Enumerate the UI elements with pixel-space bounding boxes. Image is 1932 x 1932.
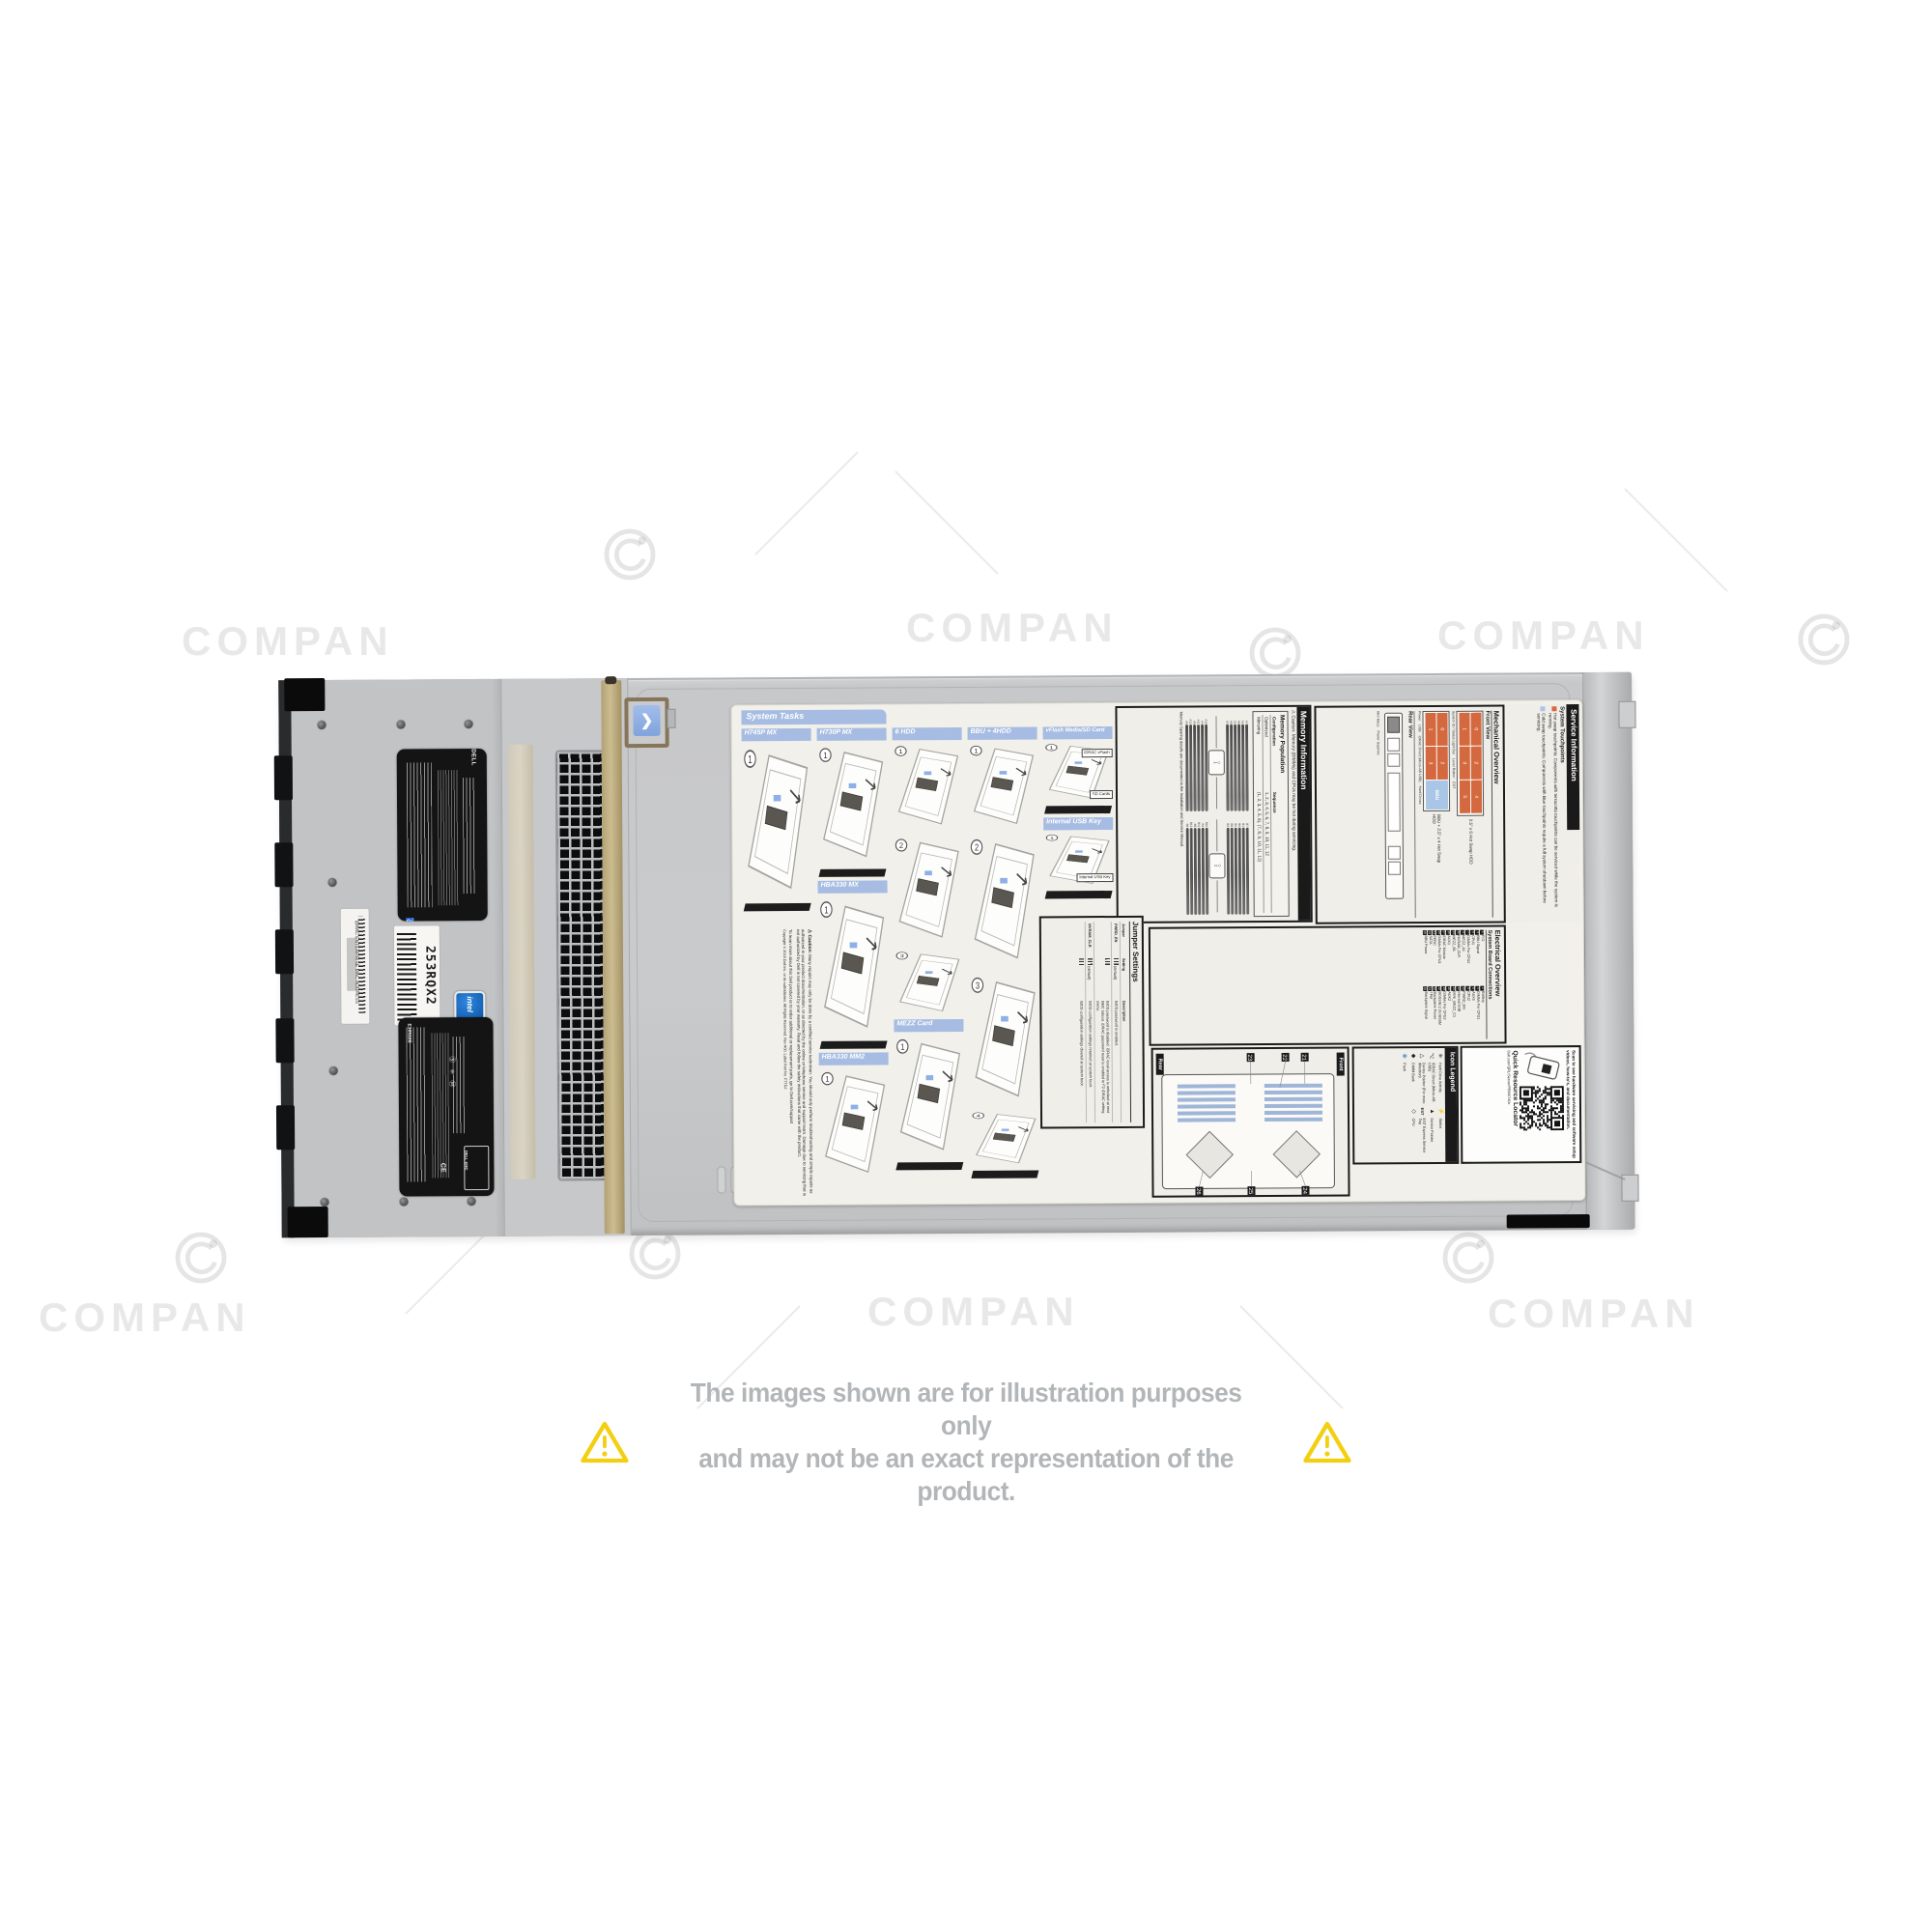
bbu-block: BBU (1426, 781, 1448, 810)
svg-text:21: 21 (1300, 1054, 1306, 1061)
ul-number: E105106 (406, 1023, 412, 1042)
task-diagram: 3 (894, 949, 963, 1016)
drive-bay: 0 (1470, 713, 1481, 746)
dell-emc-text: DELL EMC (464, 1151, 469, 1170)
connection-item: 2Battery (1480, 986, 1484, 1039)
connection-item: 13MEZZ_B1 (1451, 930, 1455, 983)
column-header: HBA330 MX (818, 880, 888, 893)
column-endbar (744, 903, 811, 911)
legend-cpu-icon: ◇CPU (1409, 1107, 1416, 1160)
dimm-slot: B12 (1189, 817, 1194, 914)
legend-push-icon: ◉Push (1402, 1051, 1408, 1104)
qrl-scan-text: Scan to see hardware servicing and softw… (1566, 1050, 1577, 1158)
task-diagram: 1 (968, 741, 1038, 830)
screw (400, 1197, 409, 1206)
watermark-logo (1793, 609, 1855, 675)
drive-bay-column: 45 (1459, 781, 1482, 813)
watermark-text: COMPAN (1437, 612, 1650, 659)
svg-text:1: 1 (974, 749, 978, 754)
jumper-row: NVRAM_CLR(default)BIOS configuration set… (1085, 922, 1094, 1122)
dimm-group-cpu2: B7B1B8B2B9B3◇2B10B4B11B5B12B6 (1185, 817, 1250, 914)
drive-bay: 3 (1425, 747, 1435, 780)
dimm-slot: A8 (1236, 714, 1241, 810)
memory-population-title: Memory Population (1278, 715, 1286, 913)
jumper-row: BIOS password is disabled. iDRAC local a… (1094, 922, 1112, 1122)
watermark-line (754, 451, 858, 554)
connection-item: 11NVRAM_CLR (1456, 930, 1460, 983)
task-diagram: 1 (819, 1066, 890, 1180)
column-header: Internal USB Key (1043, 817, 1113, 830)
connection-item: 15AUX1 (1446, 930, 1450, 983)
drive-latch-tab (274, 755, 293, 800)
qrl-url: Dell.com/QRL/Server/PEMX740c (1507, 1050, 1512, 1158)
jumper-row: BIOS configuration settings cleared at s… (1077, 922, 1087, 1122)
task-diagram: 1 (893, 742, 963, 831)
svg-text:25: 25 (1247, 1188, 1253, 1195)
svg-text:1: 1 (1050, 836, 1055, 840)
memory-row-config: Mirroring (1255, 715, 1263, 790)
task-column-6hdd: 6 HDD 1 2 3 MEZZ Card 1 (893, 727, 965, 1174)
column-header: BBU + 4HDD (968, 726, 1037, 739)
rear-flange (1582, 672, 1635, 1230)
dimm-slot: B11 (1197, 817, 1202, 914)
column-header: H730P MX (817, 727, 887, 740)
support-text: To learn more about this Dell product or… (787, 929, 794, 1198)
cold-swap-square (1541, 706, 1546, 711)
drive-latch-tab (276, 1105, 295, 1150)
jumper-row: PWRD_EN(default)BIOS password is enabled… (1111, 922, 1121, 1122)
copyright-text: Copyright © 2018 Dell Inc. or its subsid… (781, 929, 787, 1198)
column-header: HBA330 MM2 (819, 1052, 889, 1065)
svg-text:2: 2 (975, 842, 979, 853)
front-view-drives-6hdd: 012345 (1456, 711, 1484, 816)
connection-item: 6AUX0 (1470, 986, 1474, 1039)
svg-text:2: 2 (899, 841, 903, 850)
service-info-box: Service Information System Touchpoints H… (1506, 704, 1579, 923)
qrl-title: Quick Resource Locator (1511, 1050, 1518, 1158)
svg-text:1: 1 (1049, 746, 1054, 751)
cert-icons: Ⓢ ⚛ Ⓜ (447, 1056, 457, 1089)
system-board-connections-title: System Board Connections (1486, 930, 1493, 1039)
drive-bay: 5 (1460, 781, 1470, 813)
dimm-slot: B8 (1237, 817, 1242, 914)
memory-row-config: Optimized (1263, 715, 1270, 790)
memory-caution: ⚠ Caution: Memory (DIMMs) and CPUs may b… (1290, 707, 1297, 921)
memory-population-box: Memory Population Configuration Sequence… (1252, 711, 1289, 917)
drive-bay-column: 01 (1458, 713, 1481, 746)
column-header: 6 HDD (893, 727, 962, 740)
regulatory-label-top: DELL ♿ ⚠ ⊘ (397, 749, 488, 922)
dimm-slot: A7 (1244, 714, 1249, 810)
watermark-text: COMPAN (906, 605, 1119, 651)
config-column-header: Configuration (1270, 715, 1278, 790)
connection-item: 12Internal USB (1456, 986, 1460, 1039)
internal-usb-callout: Internal USB Key (1076, 873, 1113, 882)
column-endbar (895, 1162, 963, 1170)
latch-tab (667, 709, 675, 728)
task-diagram: 3 (969, 971, 1039, 1106)
connection-item: 25BBU Power (1422, 930, 1426, 983)
server-chassis-top-view: DELL ♿ ⚠ ⊘ iDRAC ENTERPRISE MAC ADDRESS … (278, 672, 1634, 1238)
svg-text:4: 4 (977, 1114, 981, 1119)
disclaimer-line-2: and may not be an exact representation o… (669, 1442, 1262, 1508)
watermark-logo (1437, 1227, 1499, 1293)
regulatory-label-bottom: E105106 CE Ⓢ ⚛ Ⓜ DELL EMC (398, 1017, 494, 1197)
drive-bay: 4 (1471, 781, 1482, 813)
dimm-slot: B7 (1245, 817, 1250, 914)
intel-logo-text: intel (466, 994, 474, 1015)
dimm-slot: B4 (1201, 817, 1206, 914)
sequence-column-header: Sequence (1270, 790, 1278, 913)
flange-tab-top (1618, 701, 1635, 728)
task-diagram: 2 (968, 833, 1038, 968)
front-tab: Front (1337, 1053, 1345, 1076)
lid-release-latch: ❯ (624, 697, 668, 748)
task-diagram: 1 (894, 1034, 964, 1159)
dimm-slot: B1 (1241, 817, 1246, 914)
rear-tab: Rear (1156, 1054, 1164, 1075)
dimm-slot: B5 (1193, 817, 1198, 914)
drive-bay-column: 01 (1424, 713, 1447, 746)
service-tag-barcode (397, 930, 417, 1020)
memory-information-header: Memory Information (1296, 707, 1310, 921)
column-endbar (820, 1040, 888, 1048)
front-corner-block-bottom (288, 1207, 328, 1237)
screw (328, 878, 337, 887)
column-endbar (971, 1170, 1038, 1178)
board-drawing: 21 22 23 24 25 26 (1150, 1049, 1349, 1200)
mechanical-overview-box: Mechanical Overview Front View 012345 2.… (1314, 705, 1505, 924)
task-diagram: 1 Internal USB Key (1043, 832, 1113, 888)
qr-code (1520, 1086, 1564, 1130)
qrl-box: Scan to see hardware servicing and softw… (1461, 1045, 1582, 1164)
svg-text:23: 23 (1246, 1055, 1252, 1062)
dimm-slot: A12 (1188, 715, 1193, 811)
svg-text:3: 3 (900, 953, 905, 958)
icon-legend-header: Icon Legend (1445, 1048, 1458, 1162)
legend-est-icon: ESTEST Express Service Tag (1418, 1107, 1426, 1160)
legend-usb-icon: ⌥iDRAC Direct (Micro-AB USB) (1427, 1051, 1435, 1104)
column-endbar (1044, 806, 1112, 813)
column-endbar (1045, 891, 1113, 898)
column-endbar (819, 868, 887, 876)
connection-item: 18DIMMs For CPU2 (1442, 986, 1446, 1039)
dimm-slot: A9 (1229, 714, 1234, 810)
watermark-line (895, 470, 998, 574)
task-diagram: 2 (893, 834, 963, 946)
legend-dimm-icon: ◆DIMM Bank (1409, 1051, 1416, 1104)
ce-mark: CE (440, 1163, 446, 1173)
task-diagram: 1 (742, 743, 812, 900)
legend-status-icon: ⚡Status (1437, 1106, 1444, 1159)
connection-item: 21PERC (1432, 930, 1435, 983)
service-tag-text: 253RQX2 (422, 931, 438, 1020)
connection-item: 4DIMMs For CPU1 (1475, 986, 1479, 1039)
mac-label-text: iDRAC ENTERPRISE MAC ADDRESS (354, 909, 360, 1015)
drive-latch-tab (275, 929, 294, 974)
dimm-slot: B9 (1230, 817, 1235, 914)
warning-triangle-icon (580, 1418, 630, 1466)
dimm-slot: A6 (1184, 715, 1189, 811)
dimm-slot: A3 (1225, 715, 1230, 811)
cpu-icon: ◇1 (1207, 715, 1226, 811)
drive-bay: 2 (1436, 747, 1447, 780)
dimm-slot: A5 (1192, 715, 1197, 811)
connection-item: 24TPM (1428, 986, 1432, 1039)
dimm-group-cpu1: A7A1A8A2A9A3◇1A10A4A11A5A12A6 (1184, 714, 1249, 810)
phone-hand-icon (1521, 1050, 1562, 1083)
task-diagram: 1 (818, 895, 889, 1037)
connection-item: 23SATA (1427, 930, 1431, 983)
drive-bay-column: 23 (1424, 747, 1447, 780)
lid-slot-left (717, 1166, 725, 1193)
connection-item: 8CPU2 (1465, 986, 1469, 1039)
connection-item: 14MINI_MEZZ_C1 (1452, 986, 1456, 1039)
dimm-slot: B6 (1185, 817, 1190, 914)
task-column-vflash: vFlash Media/SD Card 1 iDRAC vFlash SD C… (1043, 726, 1114, 902)
screw (318, 721, 327, 729)
front-view-drives-bbu: 0123BBU (1422, 711, 1450, 811)
watermark-text: COMPAN (867, 1289, 1080, 1335)
warning-triangle-icon (1302, 1418, 1352, 1466)
ventilation-grille (555, 750, 609, 1180)
screw (321, 1198, 329, 1207)
hot-swap-square (1551, 706, 1556, 711)
connection-item: 19DIMMs For CPU1 (1436, 930, 1440, 983)
front-corner-block-top (284, 678, 325, 711)
svg-text:1: 1 (823, 750, 828, 760)
service-tag-label: 253RQX2 (394, 925, 440, 1025)
connection-item: 1FIO (1480, 930, 1484, 983)
electrical-overview-box: Electrical Overview System Board Connect… (1149, 925, 1507, 1046)
hot-swap-text: Hot swap touchpoints: Components with te… (1548, 713, 1559, 921)
connection-item: 20BOSS/M.2 2U BSSM (1437, 986, 1441, 1039)
service-information-label: System Tasks H745P MX 1 H730P MX 1 HBA33… (730, 699, 1585, 1206)
task-diagram: 4 (970, 1109, 1039, 1167)
disclaimer-line-1: The images shown are for illustration pu… (669, 1377, 1262, 1442)
connection-item: 26Backplane Signal (1423, 986, 1427, 1039)
india-bis-box: DELL EMC (464, 1146, 489, 1190)
svg-text:22: 22 (1281, 1054, 1287, 1061)
connection-item: 10PWRD_EN (1461, 986, 1464, 1039)
sd-cards-callout: SD Cards (1090, 790, 1113, 799)
idrac-vflash-callout: iDRAC vFlash (1081, 749, 1112, 757)
screw (329, 1066, 338, 1075)
server-front-bezel: DELL ♿ ⚠ ⊘ iDRAC ENTERPRISE MAC ADDRESS … (278, 679, 504, 1237)
column-header: MEZZ Card (894, 1019, 963, 1032)
drive-bay: 0 (1436, 713, 1447, 746)
rear-notch (1507, 1214, 1590, 1229)
watermark-text: COMPAN (1488, 1291, 1700, 1337)
icon-legend-box: Icon Legend ⎈Hard Drive Activity⚡Status⌥… (1352, 1046, 1460, 1165)
drive-bay: 2 (1471, 747, 1482, 780)
svg-text:1: 1 (898, 749, 902, 754)
svg-text:24: 24 (1301, 1187, 1307, 1194)
rear-view-label: Rear View (1407, 711, 1416, 918)
tan-rail (508, 745, 536, 1179)
task-diagram: 1 (817, 742, 888, 866)
drive-latch-tab (275, 1018, 294, 1063)
dimm-slot: A11 (1196, 715, 1201, 811)
cpu-icon: ◇2 (1208, 817, 1227, 914)
system-board-diagram: Front Rear 21 22 23 (1151, 1047, 1350, 1198)
svg-text:26: 26 (1195, 1188, 1201, 1195)
connection-list: 1FIO2Battery3BBU Signal4DIMMs For CPU15C… (1422, 930, 1484, 1039)
memory-row-sequence: (1, 2, 3, 4, 5, 6), (7, 8, 9, 10, 11, 12… (1256, 790, 1264, 913)
regulatory-icons: ♿ ⚠ ⊘ (406, 917, 414, 921)
svg-text:3: 3 (976, 980, 980, 991)
caution-text: Many repairs may only be done by a certi… (795, 929, 813, 1196)
product-photo-stage: COMPANCOMPANCOMPANCOMPANCOMPANCOMPANCOMP… (0, 0, 1932, 1932)
icon-legend-entries: ⎈Hard Drive Activity⚡Status⌥iDRAC Direct… (1400, 1048, 1446, 1162)
svg-text:1: 1 (824, 904, 828, 915)
column-header: vFlash Media/SD Card (1043, 726, 1113, 739)
dimm-slot: B2 (1234, 817, 1238, 914)
system-touchpoints-title: System Touchpoints (1558, 706, 1565, 923)
drive-bay-column: 23 (1459, 747, 1482, 780)
dimm-slot: A4 (1200, 715, 1205, 811)
screw (468, 1197, 476, 1206)
watermark-text: COMPAN (182, 618, 394, 665)
dimm-diagram: A7A1A8A2A9A3◇1A10A4A11A5A12A6B7B1B8B2B9B… (1184, 707, 1251, 921)
dimm-slot: A2 (1233, 714, 1237, 810)
connection-item: 5CPU1 (1470, 930, 1474, 983)
view1-label: 2.5" x 6 Hot Swap HDD (1468, 819, 1474, 873)
vent-section (500, 678, 632, 1236)
view2-label: BBU + 2.5" x 4 Hot Swap HDD (1432, 814, 1442, 868)
connection-item: 3BBU Signal (1475, 930, 1479, 983)
memory-information-box: Memory Information ⚠ Caution: Memory (DI… (1115, 705, 1312, 923)
connection-item: 16AUX2 (1447, 986, 1451, 1039)
jumper-settings-title: Jumper Settings (1129, 922, 1141, 1122)
electrical-overview-title: Electrical Overview (1493, 930, 1503, 1039)
watermark-logo (170, 1227, 232, 1293)
task-column-h745p: H745P MX 1 (742, 728, 812, 915)
column-header: H745P MX (742, 728, 811, 741)
legend-pointer2-icon: △Device Pointer (For more direction) (1417, 1051, 1425, 1104)
rear-view-drawing (1381, 711, 1407, 904)
watermark-text: COMPAN (39, 1294, 251, 1341)
connection-item: 9MEZZ_A1 (1461, 930, 1464, 983)
screw (397, 720, 406, 728)
jumper-settings-box: Jumper Settings JumperSettingDescription… (1039, 916, 1145, 1129)
svg-text:1: 1 (748, 753, 752, 766)
drive-bay: 1 (1459, 713, 1469, 746)
connection-item: 7DIMMs For CPU2 (1465, 930, 1469, 983)
service-information-header: Service Information (1566, 704, 1579, 830)
screw (465, 720, 473, 728)
connection-item: 17iDRAC Module (1441, 930, 1445, 983)
task-column-bbu4hdd: BBU + 4HDD 1 2 3 4 (968, 726, 1040, 1181)
task-column-h730p: H730P MX 1 HBA330 MX 1 HBA330 MM2 1 (817, 727, 890, 1183)
dimm-slot: B3 (1226, 817, 1231, 914)
drive-bay: 3 (1460, 747, 1470, 780)
memory-row-sequence: 1, 2, 3, 4, 5, 6, 7, 8, 9, 10, 11, 12 (1263, 790, 1271, 913)
watermark-line (1624, 488, 1727, 591)
disclaimer: The images shown are for illustration pu… (580, 1377, 1352, 1509)
dell-brand-text: DELL (470, 749, 476, 766)
legend-drive-icon: ⎈Hard Drive Activity (1436, 1051, 1443, 1104)
drive-latch-tab (274, 842, 293, 887)
svg-text:1: 1 (900, 1041, 905, 1052)
drive-bay: 1 (1425, 713, 1435, 746)
cold-swap-text: Cold swap touchpoints: Components with b… (1536, 713, 1548, 921)
watermark-logo (599, 524, 661, 590)
latch-arrow-icon: ❯ (633, 705, 660, 736)
mechanical-overview-title: Mechanical Overview (1491, 711, 1501, 918)
caution-block: ⚠ Caution: Many repairs may only be done… (743, 929, 814, 1198)
system-tasks-header: System Tasks (741, 709, 886, 724)
connection-item: 22Backplane Power (1433, 986, 1436, 1039)
svg-text:1: 1 (825, 1074, 830, 1083)
dimm-slot: A1 (1240, 714, 1245, 810)
legend-pointer-icon: ▲Device Pointer (1428, 1106, 1435, 1159)
task-diagram: 1 iDRAC vFlash SD Cards (1043, 741, 1113, 803)
idrac-mac-label: iDRAC ENTERPRISE MAC ADDRESS (341, 909, 370, 1024)
